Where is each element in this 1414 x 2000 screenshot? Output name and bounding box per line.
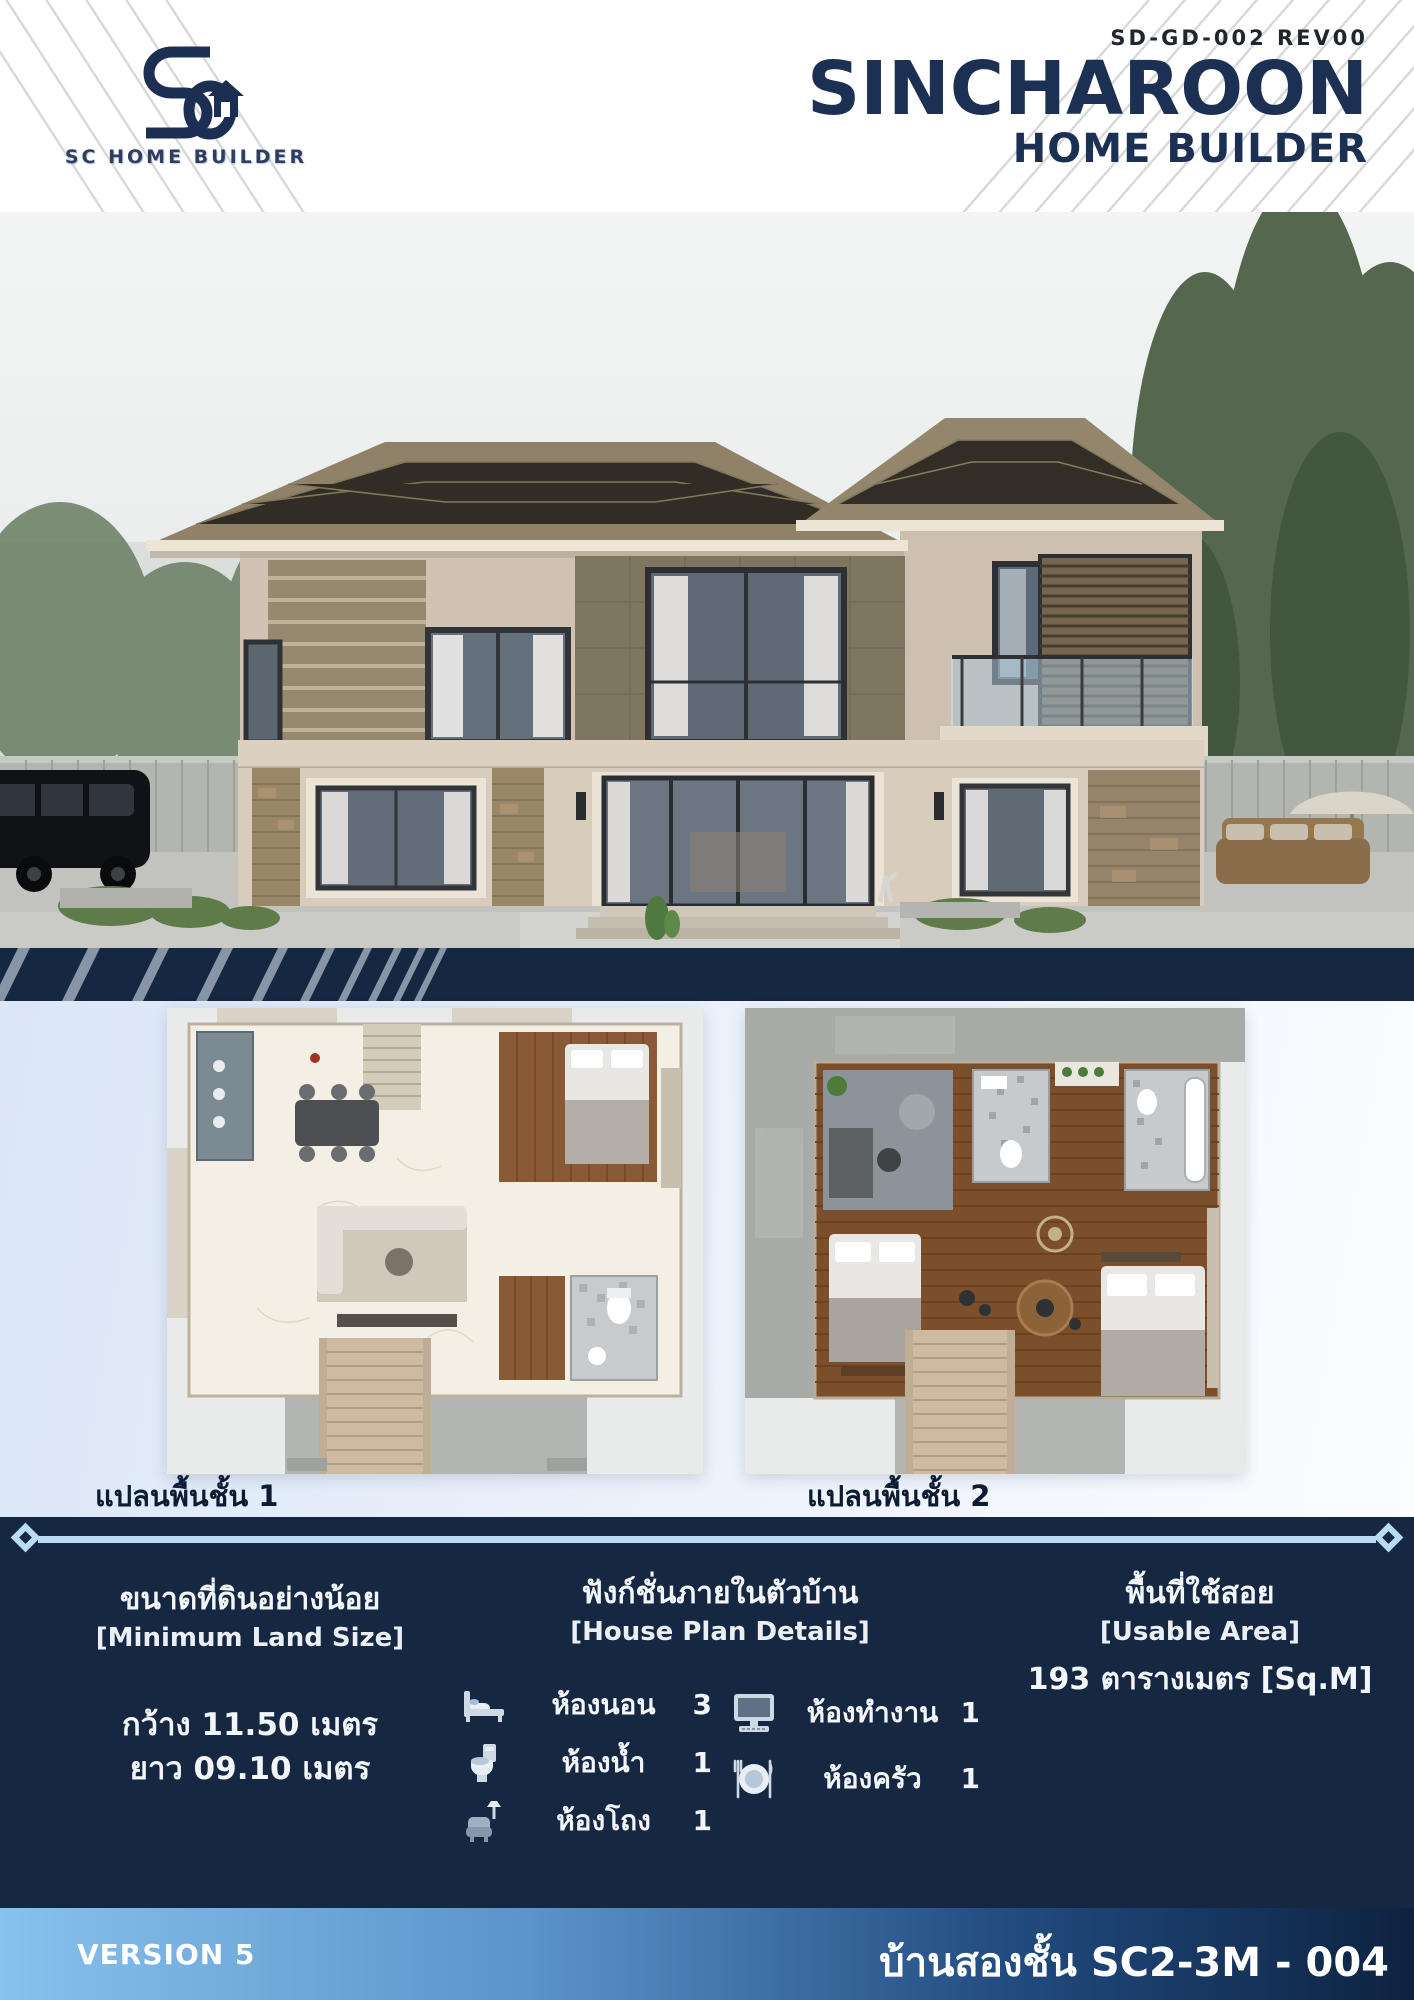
land-size-title-th: ขนาดที่ดินอย่างน้อย — [55, 1583, 445, 1618]
function-label: ห้องทำงาน — [791, 1691, 954, 1735]
floor-plan-1-label: แปลนพื้นชั้น 1 — [95, 1473, 278, 1519]
title-block: SD-GD-002 REV00 SINCHAROON HOME BUILDER — [807, 26, 1368, 172]
divider-stripe-band — [0, 948, 1414, 1001]
brochure-page: SC HOME BUILDER SD-GD-002 REV00 SINCHARO… — [0, 0, 1414, 2000]
version-label: VERSION 5 — [77, 1938, 255, 1971]
sofa-icon — [460, 1799, 508, 1843]
usable-area-title-en: [Usable Area] — [1015, 1617, 1385, 1647]
function-label: ห้องโถง — [521, 1799, 686, 1843]
logo-caption: SC HOME BUILDER — [52, 146, 320, 168]
company-logo-block: SC HOME BUILDER — [52, 38, 320, 168]
sc-logo-icon — [122, 38, 250, 142]
function-count: 1 — [954, 1696, 980, 1729]
header: SC HOME BUILDER SD-GD-002 REV00 SINCHARO… — [0, 0, 1414, 212]
land-width-value: กว้าง 11.50 เมตร — [55, 1703, 445, 1747]
floor-plans-section: แปลนพื้นชั้น 1 แปลนพื้นชั้น 2 — [0, 1001, 1414, 1517]
brand-title: SINCHAROON — [807, 52, 1368, 126]
computer-icon — [730, 1692, 778, 1734]
function-count: 1 — [954, 1762, 980, 1795]
land-size-column: ขนาดที่ดินอย่างน้อย [Minimum Land Size] … — [55, 1583, 445, 1791]
function-count: 1 — [686, 1746, 712, 1779]
house-functions-column: ฟังก์ชั่นภายในตัวบ้าน [House Plan Detail… — [460, 1577, 980, 1843]
function-item-bedroom: ห้องนอน 3 — [460, 1683, 712, 1727]
functions-title-en: [House Plan Details] — [460, 1617, 980, 1647]
floor-plan-1-image — [167, 1008, 703, 1474]
toilet-icon — [460, 1742, 508, 1784]
function-item-bathroom: ห้องน้ำ 1 — [460, 1741, 712, 1785]
function-label: ห้องนอน — [521, 1683, 686, 1727]
function-item-hall: ห้องโถง 1 — [460, 1799, 712, 1843]
brand-subtitle: HOME BUILDER — [807, 126, 1368, 172]
bed-icon — [460, 1687, 508, 1723]
function-count: 1 — [686, 1804, 712, 1837]
footer-bar: VERSION 5 บ้านสองชั้น SC2-3M - 004 — [0, 1908, 1414, 2000]
usable-area-column: พื้นที่ใช้สอย [Usable Area] 193 ตารางเมต… — [1015, 1577, 1385, 1703]
function-label: ห้องครัว — [791, 1757, 954, 1801]
function-count: 3 — [686, 1688, 712, 1721]
kitchen-icon — [730, 1757, 778, 1801]
house-render-image — [0, 212, 1414, 948]
floor-plan-2-image — [745, 1008, 1245, 1474]
functions-title-th: ฟังก์ชั่นภายในตัวบ้าน — [460, 1577, 980, 1612]
diamond-ornament-left — [11, 1523, 41, 1553]
function-item-kitchen: ห้องครัว 1 — [730, 1757, 980, 1801]
usable-area-value: 193 ตารางเมตร [Sq.M] — [1015, 1656, 1385, 1703]
floor-plan-2-label: แปลนพื้นชั้น 2 — [807, 1473, 990, 1519]
usable-area-title-th: พื้นที่ใช้สอย — [1015, 1577, 1385, 1612]
house — [146, 418, 1224, 939]
function-label: ห้องน้ำ — [521, 1741, 686, 1785]
model-name: บ้านสองชั้น SC2-3M - 004 — [879, 1930, 1389, 1994]
specs-band: ขนาดที่ดินอย่างน้อย [Minimum Land Size] … — [0, 1517, 1414, 1908]
land-size-title-en: [Minimum Land Size] — [55, 1623, 445, 1653]
diamond-ornament-right — [1374, 1523, 1404, 1553]
land-length-value: ยาว 09.10 เมตร — [55, 1747, 445, 1791]
decorative-line — [38, 1536, 1376, 1543]
function-item-workroom: ห้องทำงาน 1 — [730, 1691, 980, 1735]
